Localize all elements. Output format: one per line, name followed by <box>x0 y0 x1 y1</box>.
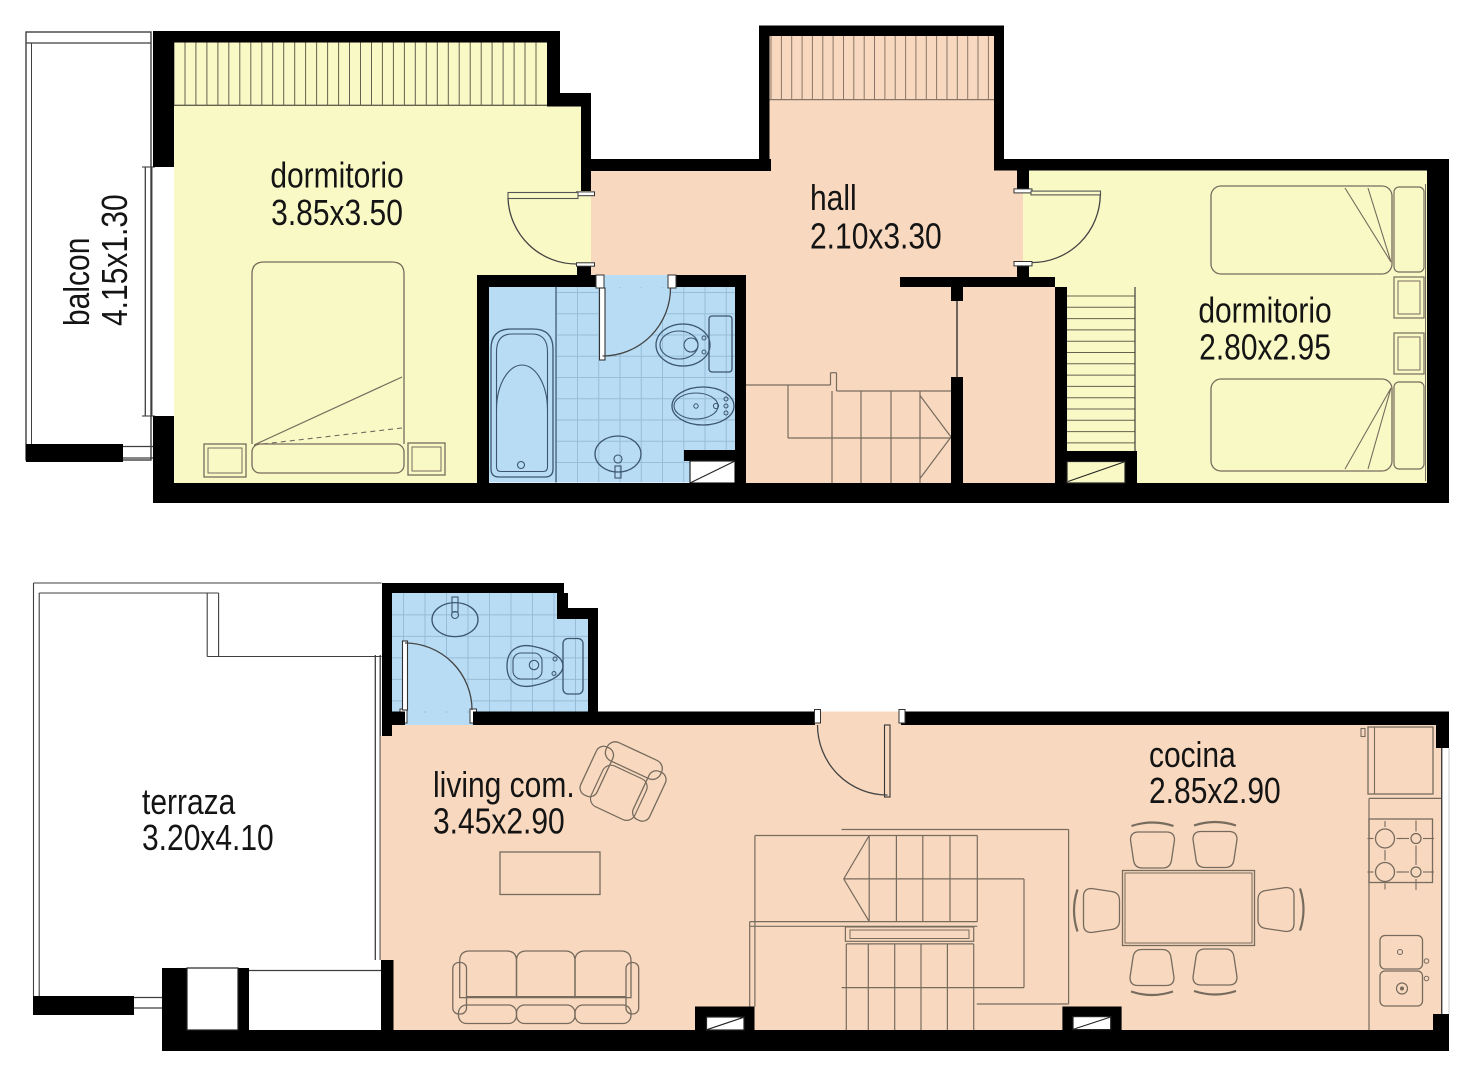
svg-text:3.85x3.50: 3.85x3.50 <box>271 193 403 233</box>
svg-text:hall: hall <box>810 178 857 218</box>
svg-text:dormitorio: dormitorio <box>270 156 403 196</box>
svg-text:cocina: cocina <box>1149 735 1236 775</box>
svg-text:2.85x2.90: 2.85x2.90 <box>1149 771 1281 811</box>
svg-text:2.10x3.30: 2.10x3.30 <box>810 217 942 257</box>
svg-text:4.15x1.30: 4.15x1.30 <box>95 194 135 326</box>
svg-text:3.45x2.90: 3.45x2.90 <box>433 802 565 842</box>
svg-text:balcon: balcon <box>57 238 97 326</box>
svg-text:dormitorio: dormitorio <box>1198 291 1331 331</box>
svg-text:living com.: living com. <box>433 765 575 805</box>
svg-text:2.80x2.95: 2.80x2.95 <box>1199 328 1331 368</box>
svg-text:terraza: terraza <box>142 782 236 822</box>
svg-text:3.20x4.10: 3.20x4.10 <box>142 818 274 858</box>
